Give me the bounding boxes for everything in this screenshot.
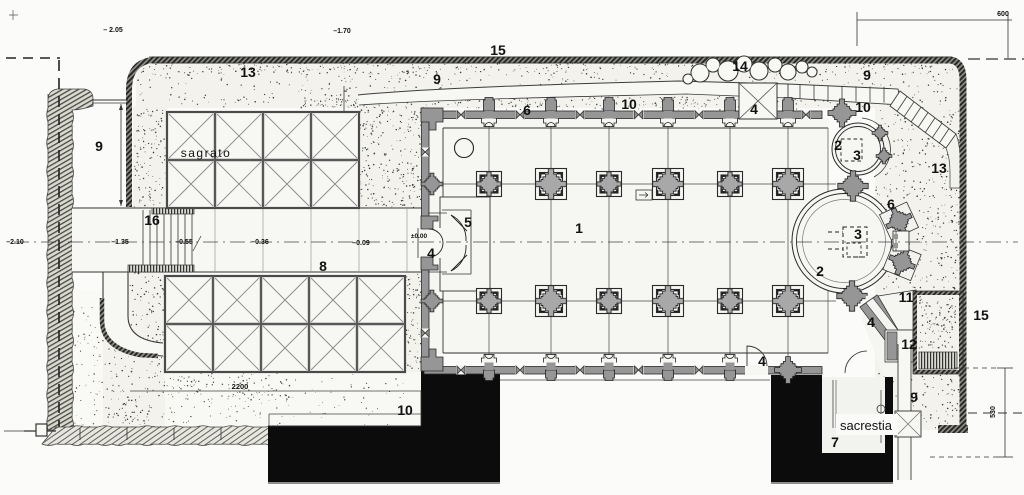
- svg-text:11: 11: [899, 289, 914, 305]
- svg-text:–2.10: –2.10: [6, 239, 24, 246]
- svg-text:– 2.05: – 2.05: [103, 27, 123, 34]
- svg-text:–0.55: –0.55: [175, 239, 193, 246]
- svg-text:9: 9: [863, 67, 871, 83]
- svg-text:2: 2: [816, 263, 824, 279]
- svg-text:6: 6: [887, 196, 895, 212]
- svg-text:–1.35: –1.35: [111, 239, 129, 246]
- svg-text:5: 5: [464, 214, 472, 230]
- svg-text:2: 2: [834, 137, 842, 153]
- svg-text:530: 530: [990, 406, 997, 418]
- svg-text:3: 3: [853, 147, 861, 163]
- svg-text:1: 1: [575, 220, 583, 236]
- svg-text:10: 10: [621, 96, 637, 112]
- svg-text:12: 12: [901, 336, 917, 352]
- svg-text:6: 6: [523, 102, 531, 118]
- svg-text:–0.36: –0.36: [251, 239, 269, 246]
- svg-text:4: 4: [867, 314, 875, 330]
- svg-text:9: 9: [910, 389, 918, 405]
- svg-text:9: 9: [95, 138, 103, 154]
- svg-text:600: 600: [997, 11, 1009, 18]
- svg-text:–0.09: –0.09: [352, 240, 370, 247]
- svg-text:4: 4: [427, 245, 435, 261]
- svg-text:16: 16: [144, 212, 160, 228]
- svg-text:3: 3: [854, 226, 862, 242]
- svg-text:13: 13: [931, 160, 947, 176]
- svg-text:14: 14: [732, 58, 748, 74]
- svg-text:–1.70: –1.70: [333, 28, 351, 35]
- svg-text:sacrestia: sacrestia: [840, 418, 893, 433]
- svg-text:10: 10: [397, 402, 413, 418]
- svg-text:2200: 2200: [232, 382, 249, 391]
- svg-text:10: 10: [855, 99, 871, 115]
- svg-text:9: 9: [433, 71, 441, 87]
- svg-text:15: 15: [490, 42, 506, 58]
- svg-text:8: 8: [319, 258, 327, 274]
- svg-text:13: 13: [240, 64, 256, 80]
- svg-text:4: 4: [758, 353, 766, 369]
- svg-text:15: 15: [973, 307, 989, 323]
- svg-text:±0.00: ±0.00: [411, 233, 428, 240]
- svg-text:7: 7: [831, 434, 839, 450]
- svg-text:4: 4: [750, 101, 758, 117]
- svg-text:sagrato: sagrato: [181, 146, 232, 160]
